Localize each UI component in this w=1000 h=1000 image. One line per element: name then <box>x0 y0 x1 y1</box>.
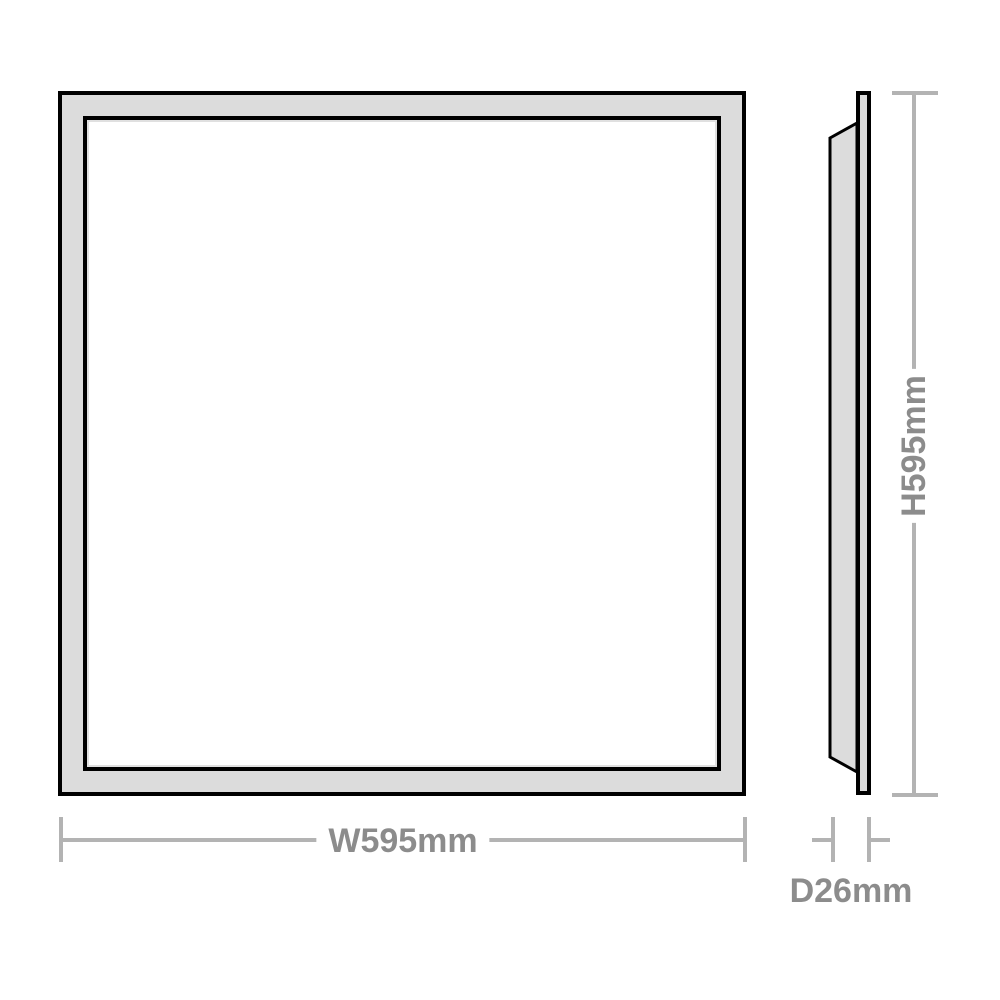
panel-front-view <box>58 91 746 796</box>
side-view-panel-body <box>858 93 869 793</box>
width-dim-label: W595mm <box>316 819 489 863</box>
panel-diffuser <box>83 116 721 771</box>
height-dim-label: H595mm <box>892 369 936 523</box>
depth-dim-tick-left <box>831 817 835 862</box>
depth-dim-label: D26mm <box>778 869 925 913</box>
side-view-frame-lip <box>830 123 857 772</box>
dimension-diagram: W595mm H595mm D26mm <box>0 0 1000 1000</box>
panel-side-view <box>826 88 878 800</box>
depth-dim-lead-right <box>870 838 890 842</box>
depth-dim-lead-left <box>812 838 832 842</box>
